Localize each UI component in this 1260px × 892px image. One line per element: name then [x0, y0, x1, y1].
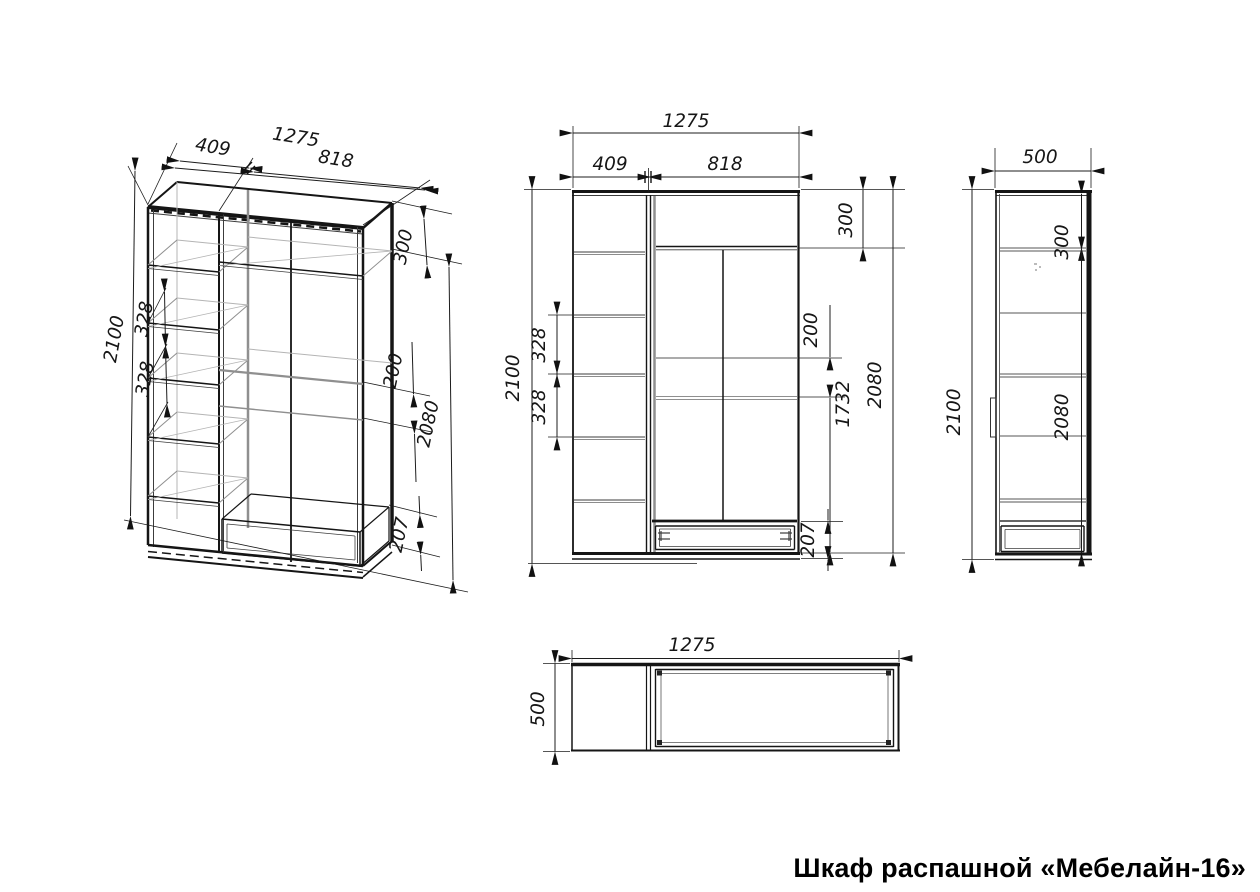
side-hatch-dots	[1034, 264, 1041, 270]
iso-right-interior	[219, 237, 392, 420]
front-dim-interior-height: 2080	[865, 361, 886, 408]
iso-dim-drawer-height: 207	[386, 515, 414, 554]
top-view: 1275 500	[528, 635, 900, 752]
drawing-title: Шкаф распашной «Мебелайн-16»	[793, 853, 1246, 884]
isometric-view: 2100 328 328 1275 409 818 300	[100, 124, 468, 592]
iso-dim-overall-height: 2100	[100, 314, 129, 364]
top-dimensions: 1275 500	[528, 635, 899, 752]
side-dim-interior-height: 2080	[1052, 393, 1073, 440]
front-dim-drawer-height: 207	[798, 522, 819, 558]
front-dim-left-width: 409	[592, 154, 627, 175]
side-dim-overall-height: 2100	[944, 388, 965, 435]
front-dim-shelf-upper: 328	[529, 327, 550, 362]
iso-dim-top-compartment: 300	[390, 227, 418, 266]
iso-left-shelves	[148, 240, 248, 507]
iso-dim-right-width: 818	[317, 146, 355, 172]
top-corner-mark	[886, 740, 891, 745]
side-view: 500 2100 300 2080	[944, 147, 1092, 560]
iso-dimensions: 2100 328 328 1275 409 818 300	[100, 124, 468, 592]
front-dim-overall-width: 1275	[662, 111, 709, 132]
front-dim-rod-drop: 200	[801, 312, 822, 347]
iso-dim-overall-width: 1275	[271, 124, 321, 152]
top-corner-mark	[886, 671, 891, 676]
front-right-section	[652, 247, 797, 550]
drawing-canvas: 2100 328 328 1275 409 818 300	[0, 0, 1260, 892]
top-inner-frame	[656, 669, 894, 747]
front-left-shelves	[574, 252, 645, 503]
side-shelf-lines	[1000, 248, 1086, 521]
drawing-sheet: 2100 328 328 1275 409 818 300	[0, 0, 1260, 892]
iso-dim-rod-drop: 200	[380, 351, 408, 390]
side-handle	[991, 398, 997, 437]
front-dim-top-compartment: 300	[836, 202, 857, 237]
iso-dim-shelf-lower: 328	[132, 360, 159, 398]
side-dim-depth: 500	[1022, 147, 1057, 168]
side-drawer	[1001, 526, 1084, 552]
top-corner-mark	[657, 740, 662, 745]
front-dim-door-height: 1732	[833, 380, 854, 427]
top-dim-depth: 500	[528, 691, 549, 726]
front-dim-shelf-lower: 328	[529, 389, 550, 424]
front-dim-overall-height: 2100	[503, 354, 524, 401]
side-dimensions: 500 2100 300 2080	[944, 147, 1091, 560]
front-dim-right-width: 818	[707, 154, 742, 175]
front-view: 1275 409 818 2100 328 328 300 2080	[503, 111, 905, 571]
iso-dim-interior-height: 2080	[413, 399, 443, 449]
side-dim-top-compartment: 300	[1052, 224, 1073, 259]
front-dimensions: 1275 409 818 2100 328 328 300 2080	[503, 111, 905, 571]
top-corner-mark	[657, 671, 662, 676]
top-dim-overall-width: 1275	[668, 635, 715, 656]
iso-dim-left-width: 409	[194, 134, 232, 160]
